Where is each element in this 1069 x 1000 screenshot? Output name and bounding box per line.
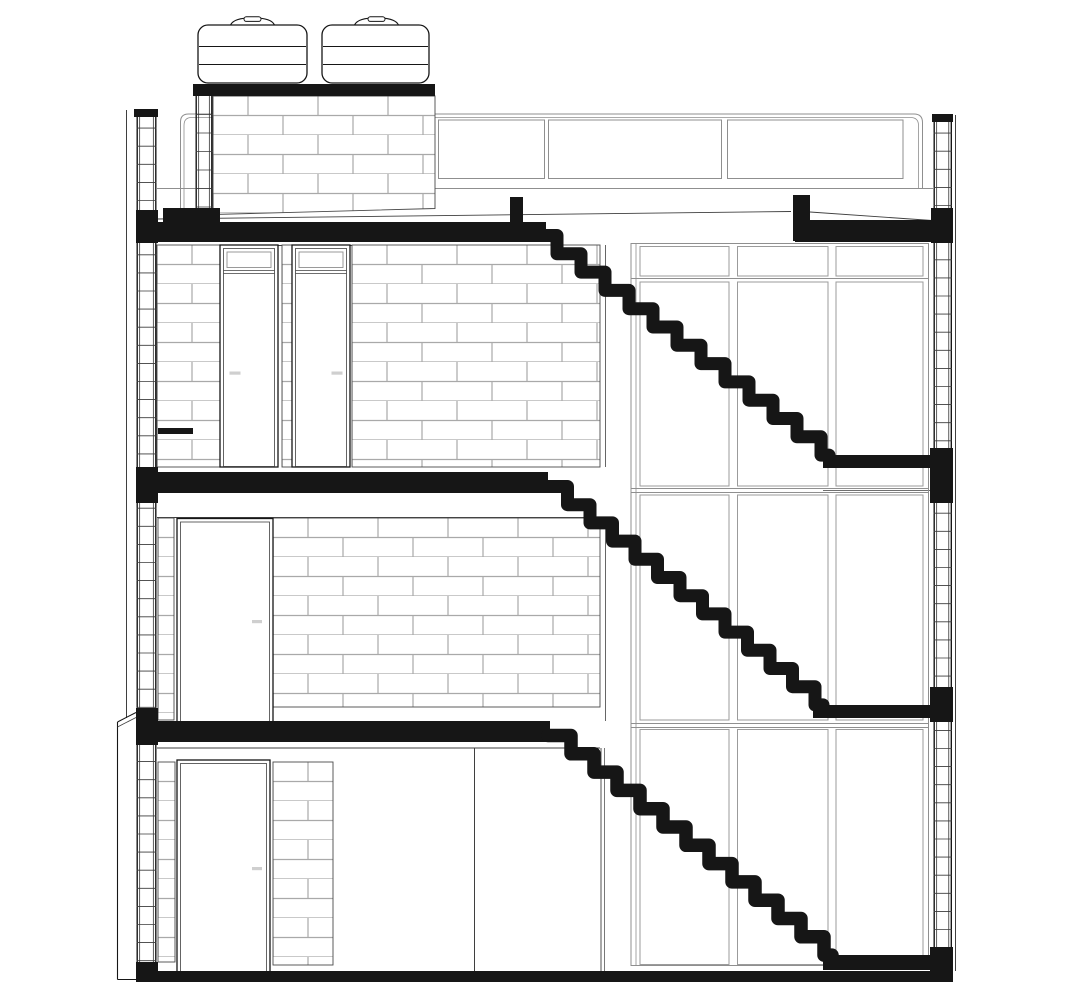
- level2-door-b-handle: [332, 372, 343, 375]
- left-wall-block-roof: [136, 210, 158, 243]
- left-wall-block-base: [136, 962, 158, 982]
- roof-slab-right: [795, 220, 952, 242]
- stair-landing-3: [823, 955, 949, 970]
- water-tank-1-body: [198, 25, 307, 83]
- level2-door-b-frame: [292, 245, 350, 467]
- stair-bulkhead-post-right: [793, 195, 810, 241]
- right-wall-parapet-cap: [932, 114, 953, 122]
- left-wall-block-l1: [136, 708, 158, 745]
- water-tank-2-body: [322, 25, 429, 83]
- building-section-drawing: Architectural cross-section: three-store…: [0, 0, 1069, 1000]
- level1-floor-slab: [140, 721, 550, 742]
- ground-floor-slab: [140, 971, 952, 982]
- stair-landing-2: [813, 705, 931, 718]
- level2-floor-slab: [140, 472, 548, 493]
- level2-wall-niche-mark: [158, 428, 193, 434]
- level1-block-jamb: [158, 518, 174, 720]
- right-wall-block-roof: [931, 208, 953, 243]
- left-wall-block-l2: [136, 467, 158, 503]
- level1-door-handle: [252, 620, 262, 623]
- right-wall-block-l1: [930, 687, 953, 722]
- tank-plinth-slab: [193, 84, 435, 96]
- ground-block-jamb: [158, 762, 175, 962]
- penthouse-block-wall: [213, 96, 435, 215]
- left-wall-parapet-cap: [134, 109, 158, 117]
- water-tank-2-lid-knob: [368, 17, 385, 22]
- ground-block-pier: [273, 762, 333, 965]
- ground-door-handle: [252, 867, 262, 870]
- level2-block-wall-right: [352, 245, 600, 467]
- penthouse-wall-base-block: [163, 208, 220, 242]
- water-tank-1-lid-knob: [244, 17, 261, 22]
- level2-door-a-handle: [230, 372, 241, 375]
- level2-block-pier: [282, 245, 292, 467]
- stair-landing-1: [823, 455, 933, 468]
- stair-guard-post-left: [510, 197, 523, 223]
- level2-door-a-frame: [220, 245, 278, 467]
- level1-block-wall: [273, 518, 600, 707]
- ground-door-frame: [177, 760, 270, 972]
- right-wall-block-l2: [930, 448, 953, 503]
- section-drawing-page: Architectural cross-section: three-store…: [0, 0, 1069, 1000]
